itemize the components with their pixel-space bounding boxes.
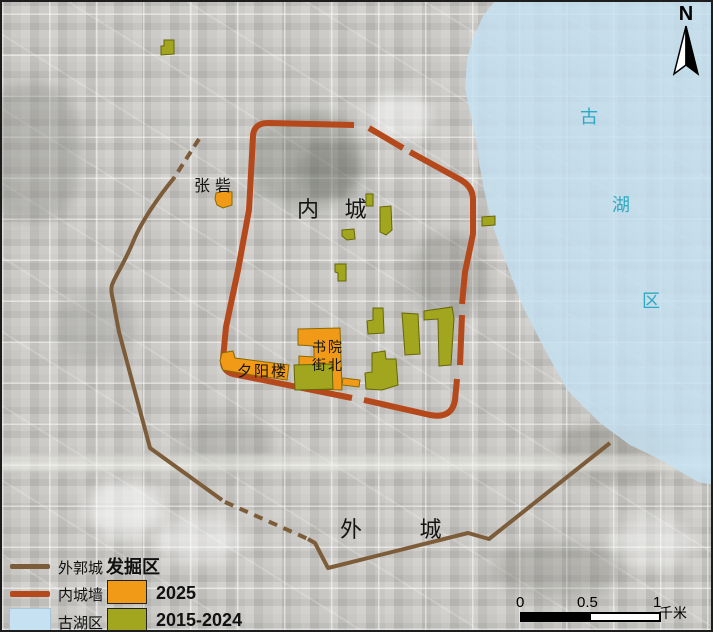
legend-label-inner-wall: 内城墙 (58, 584, 103, 605)
label-outer-city: 外 城 (340, 512, 468, 544)
legend-line-outer-wall (10, 564, 50, 569)
outer-wall-west (111, 178, 222, 500)
excavation-connector (342, 378, 360, 387)
lake-label-char-gu: 古 (580, 103, 598, 129)
legend-swatch-2025 (107, 580, 147, 604)
legend-swatch-2015-2024 (107, 608, 147, 632)
scale-tick-0: 0 (516, 594, 524, 611)
map-figure: 张砦 内 城 外 城 书院 街北 夕阳楼 古 湖 区 N 外郭城 发掘区 内城墙… (0, 0, 719, 635)
label-inner-city: 内 城 (297, 192, 377, 224)
map-frame: 张砦 内 城 外 城 书院 街北 夕阳楼 古 湖 区 N 外郭城 发掘区 内城墙… (0, 0, 713, 632)
legend-label-2025: 2025 (156, 583, 196, 604)
legend-line-inner-wall (10, 591, 50, 597)
excavation-site (161, 40, 174, 55)
excavation-site (342, 229, 355, 240)
label-xiyanglou: 夕阳楼 (237, 360, 288, 381)
lake-label-char-qu: 区 (642, 287, 660, 313)
excavation-site (365, 351, 398, 390)
north-arrow-left-half (674, 26, 686, 74)
legend-title-excavation: 发掘区 (106, 553, 160, 579)
inner-wall-north-segment (369, 128, 403, 148)
north-arrow-right-half (686, 26, 698, 74)
excavation-site (402, 313, 420, 355)
label-zhangzhai: 张砦 (194, 172, 236, 196)
legend: 外郭城 发掘区 内城墙 2025 古湖区 2015-2024 (2, 550, 272, 632)
outer-wall-dashed-south (225, 502, 308, 539)
legend-label-2015-2024: 2015-2024 (156, 610, 242, 631)
legend-swatch-lake (9, 608, 51, 632)
excavation-site (367, 308, 384, 334)
scale-bar-track (520, 612, 661, 622)
scale-unit: 千米 (659, 603, 687, 623)
north-label: N (664, 4, 708, 24)
excavation-site (482, 216, 495, 226)
scale-bar: 0 0.5 1 千米 (506, 594, 713, 628)
label-shuyuanjie-north-line1: 书院 (312, 337, 344, 357)
excavation-site (335, 264, 346, 281)
scale-tick-0-5: 0.5 (577, 594, 598, 611)
inner-wall-east-segment (460, 315, 462, 365)
scale-bar-filled-half (522, 614, 591, 620)
north-arrow: N (664, 4, 708, 83)
legend-label-lake: 古湖区 (58, 612, 103, 632)
label-shuyuanjie-north-line2: 街北 (312, 355, 344, 375)
north-arrow-icon (668, 24, 704, 78)
lake-label-char-hu: 湖 (612, 191, 630, 217)
excavation-site (424, 307, 454, 366)
inner-wall-northeast (410, 152, 473, 304)
excavation-site (380, 206, 392, 235)
outer-wall-south-east (308, 443, 610, 568)
legend-label-outer-wall: 外郭城 (58, 557, 103, 578)
